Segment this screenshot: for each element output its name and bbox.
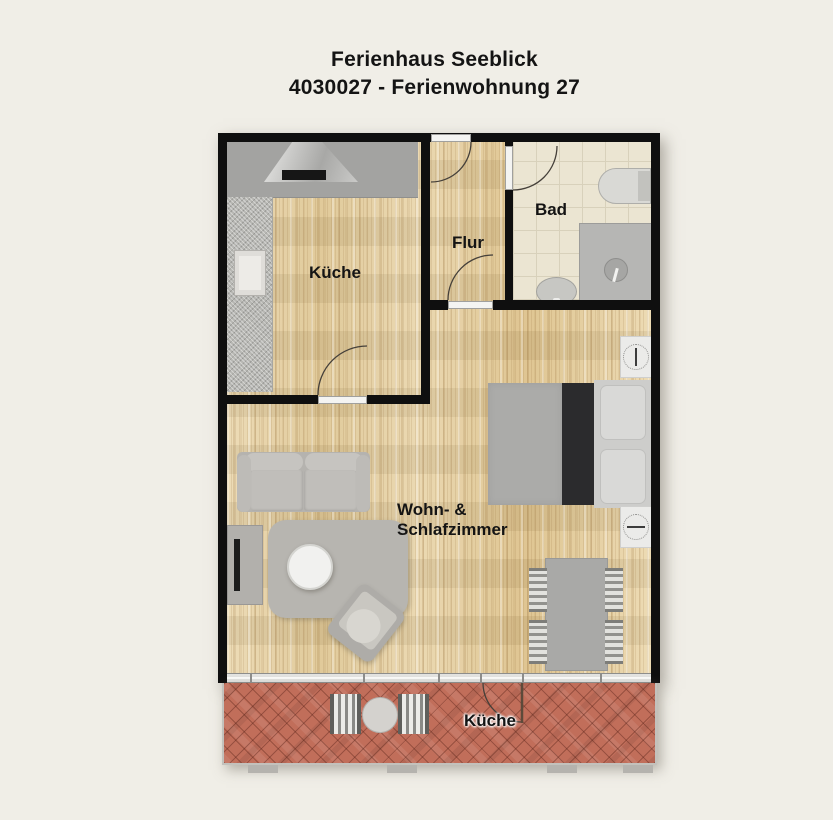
double-bed <box>488 380 651 508</box>
kitchen-door-leaf <box>318 396 367 404</box>
coffee-table <box>287 544 333 590</box>
wall-left <box>218 133 227 683</box>
dining-chair-left-bottom <box>529 620 547 664</box>
hall-door-leaf <box>448 301 493 309</box>
sofa-armrest-right <box>356 455 370 512</box>
dining-table <box>545 558 608 671</box>
terrace-step-4 <box>623 765 653 773</box>
wall-kitchen-bottom-left <box>218 395 318 404</box>
nightstand-top <box>620 336 652 378</box>
bed-blanket <box>488 383 562 505</box>
dining-chair-right-top <box>605 568 623 612</box>
bath-room-label: Bad <box>506 200 596 220</box>
bed-pillow-top <box>600 385 646 440</box>
clock-hand-bottom <box>627 526 645 528</box>
plan-title: Ferienhaus Seeblick <box>36 48 833 72</box>
terrace-chair-left <box>330 694 361 734</box>
kitchen-room-label: Küche <box>240 263 430 283</box>
window-mullion-4 <box>480 673 482 683</box>
plan-subtitle: 4030027 - Ferienwohnung 27 <box>36 76 833 100</box>
toilet-tank <box>638 171 650 201</box>
dining-chair-right-bottom <box>605 620 623 664</box>
hall-room-label: Flur <box>430 233 506 253</box>
dining-chair-left-top <box>529 568 547 612</box>
terrace-room-label: Küche <box>440 711 540 731</box>
sofa-armrest-left <box>237 455 251 512</box>
sofa-back-cushion-left <box>245 453 303 471</box>
shower <box>580 224 651 300</box>
wall-hall-bottom-left <box>421 300 448 310</box>
sofa-seat-cushion-right <box>304 470 356 511</box>
bed-pillow-bottom <box>600 449 646 504</box>
bathroom-door-leaf <box>505 146 513 190</box>
living-room-label: Wohn- & Schlafzimmer <box>397 500 547 540</box>
window-mullion-3 <box>438 673 440 683</box>
bed-runner <box>562 383 594 505</box>
toilet <box>598 168 651 204</box>
sofa-back-cushion-right <box>305 453 363 471</box>
terrace-chair-right <box>398 694 429 734</box>
window-mullion-6 <box>600 673 602 683</box>
terrace-table <box>362 697 398 733</box>
living-room-label-line1: Wohn- & <box>397 500 547 520</box>
terrace-step-1 <box>248 765 278 773</box>
clock-hand-top <box>635 348 637 366</box>
entrance-door-leaf <box>431 134 471 142</box>
sofa-seat-cushion-left <box>251 470 303 511</box>
living-room-label-line2: Schlafzimmer <box>397 520 547 540</box>
nightstand-bottom <box>620 506 652 548</box>
window-mullion-2 <box>363 673 365 683</box>
window-mullion-5 <box>522 673 524 683</box>
window-mullion-1 <box>250 673 252 683</box>
floor-plan-page: Ferienhaus Seeblick 4030027 - Ferienwohn… <box>0 0 833 820</box>
wall-right <box>651 133 660 683</box>
wall-kitchen-bottom-right <box>367 395 430 404</box>
tv <box>234 539 240 591</box>
terrace-step-3 <box>547 765 577 773</box>
cooker-hood-vent <box>282 170 326 180</box>
tv-sideboard <box>227 525 263 605</box>
sofa <box>237 452 370 512</box>
wall-bath-bottom <box>493 300 651 310</box>
terrace-step-2 <box>387 765 417 773</box>
